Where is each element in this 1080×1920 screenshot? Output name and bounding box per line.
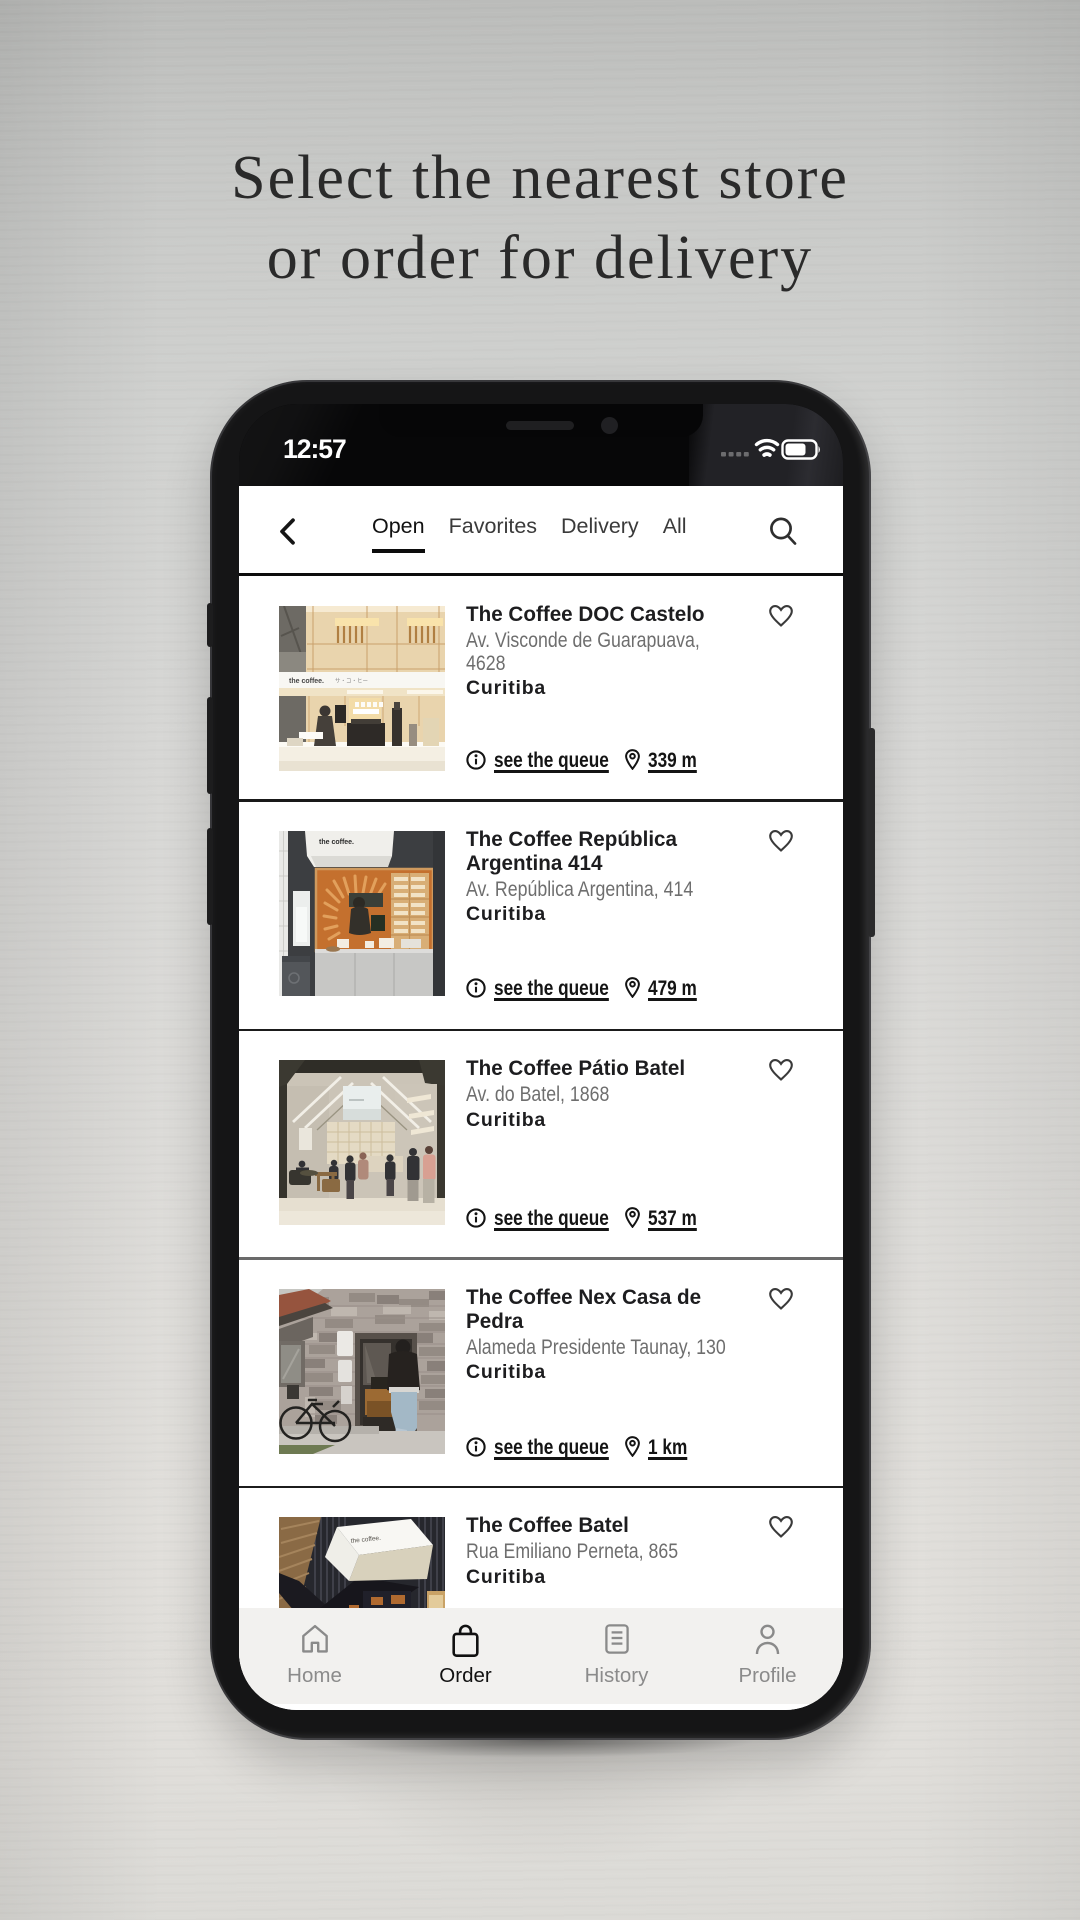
svg-text:the coffee.: the coffee. <box>319 839 354 846</box>
svg-text:サ・コ・ヒー: サ・コ・ヒー <box>335 678 368 685</box>
svg-text:the coffee.: the coffee. <box>289 678 324 685</box>
